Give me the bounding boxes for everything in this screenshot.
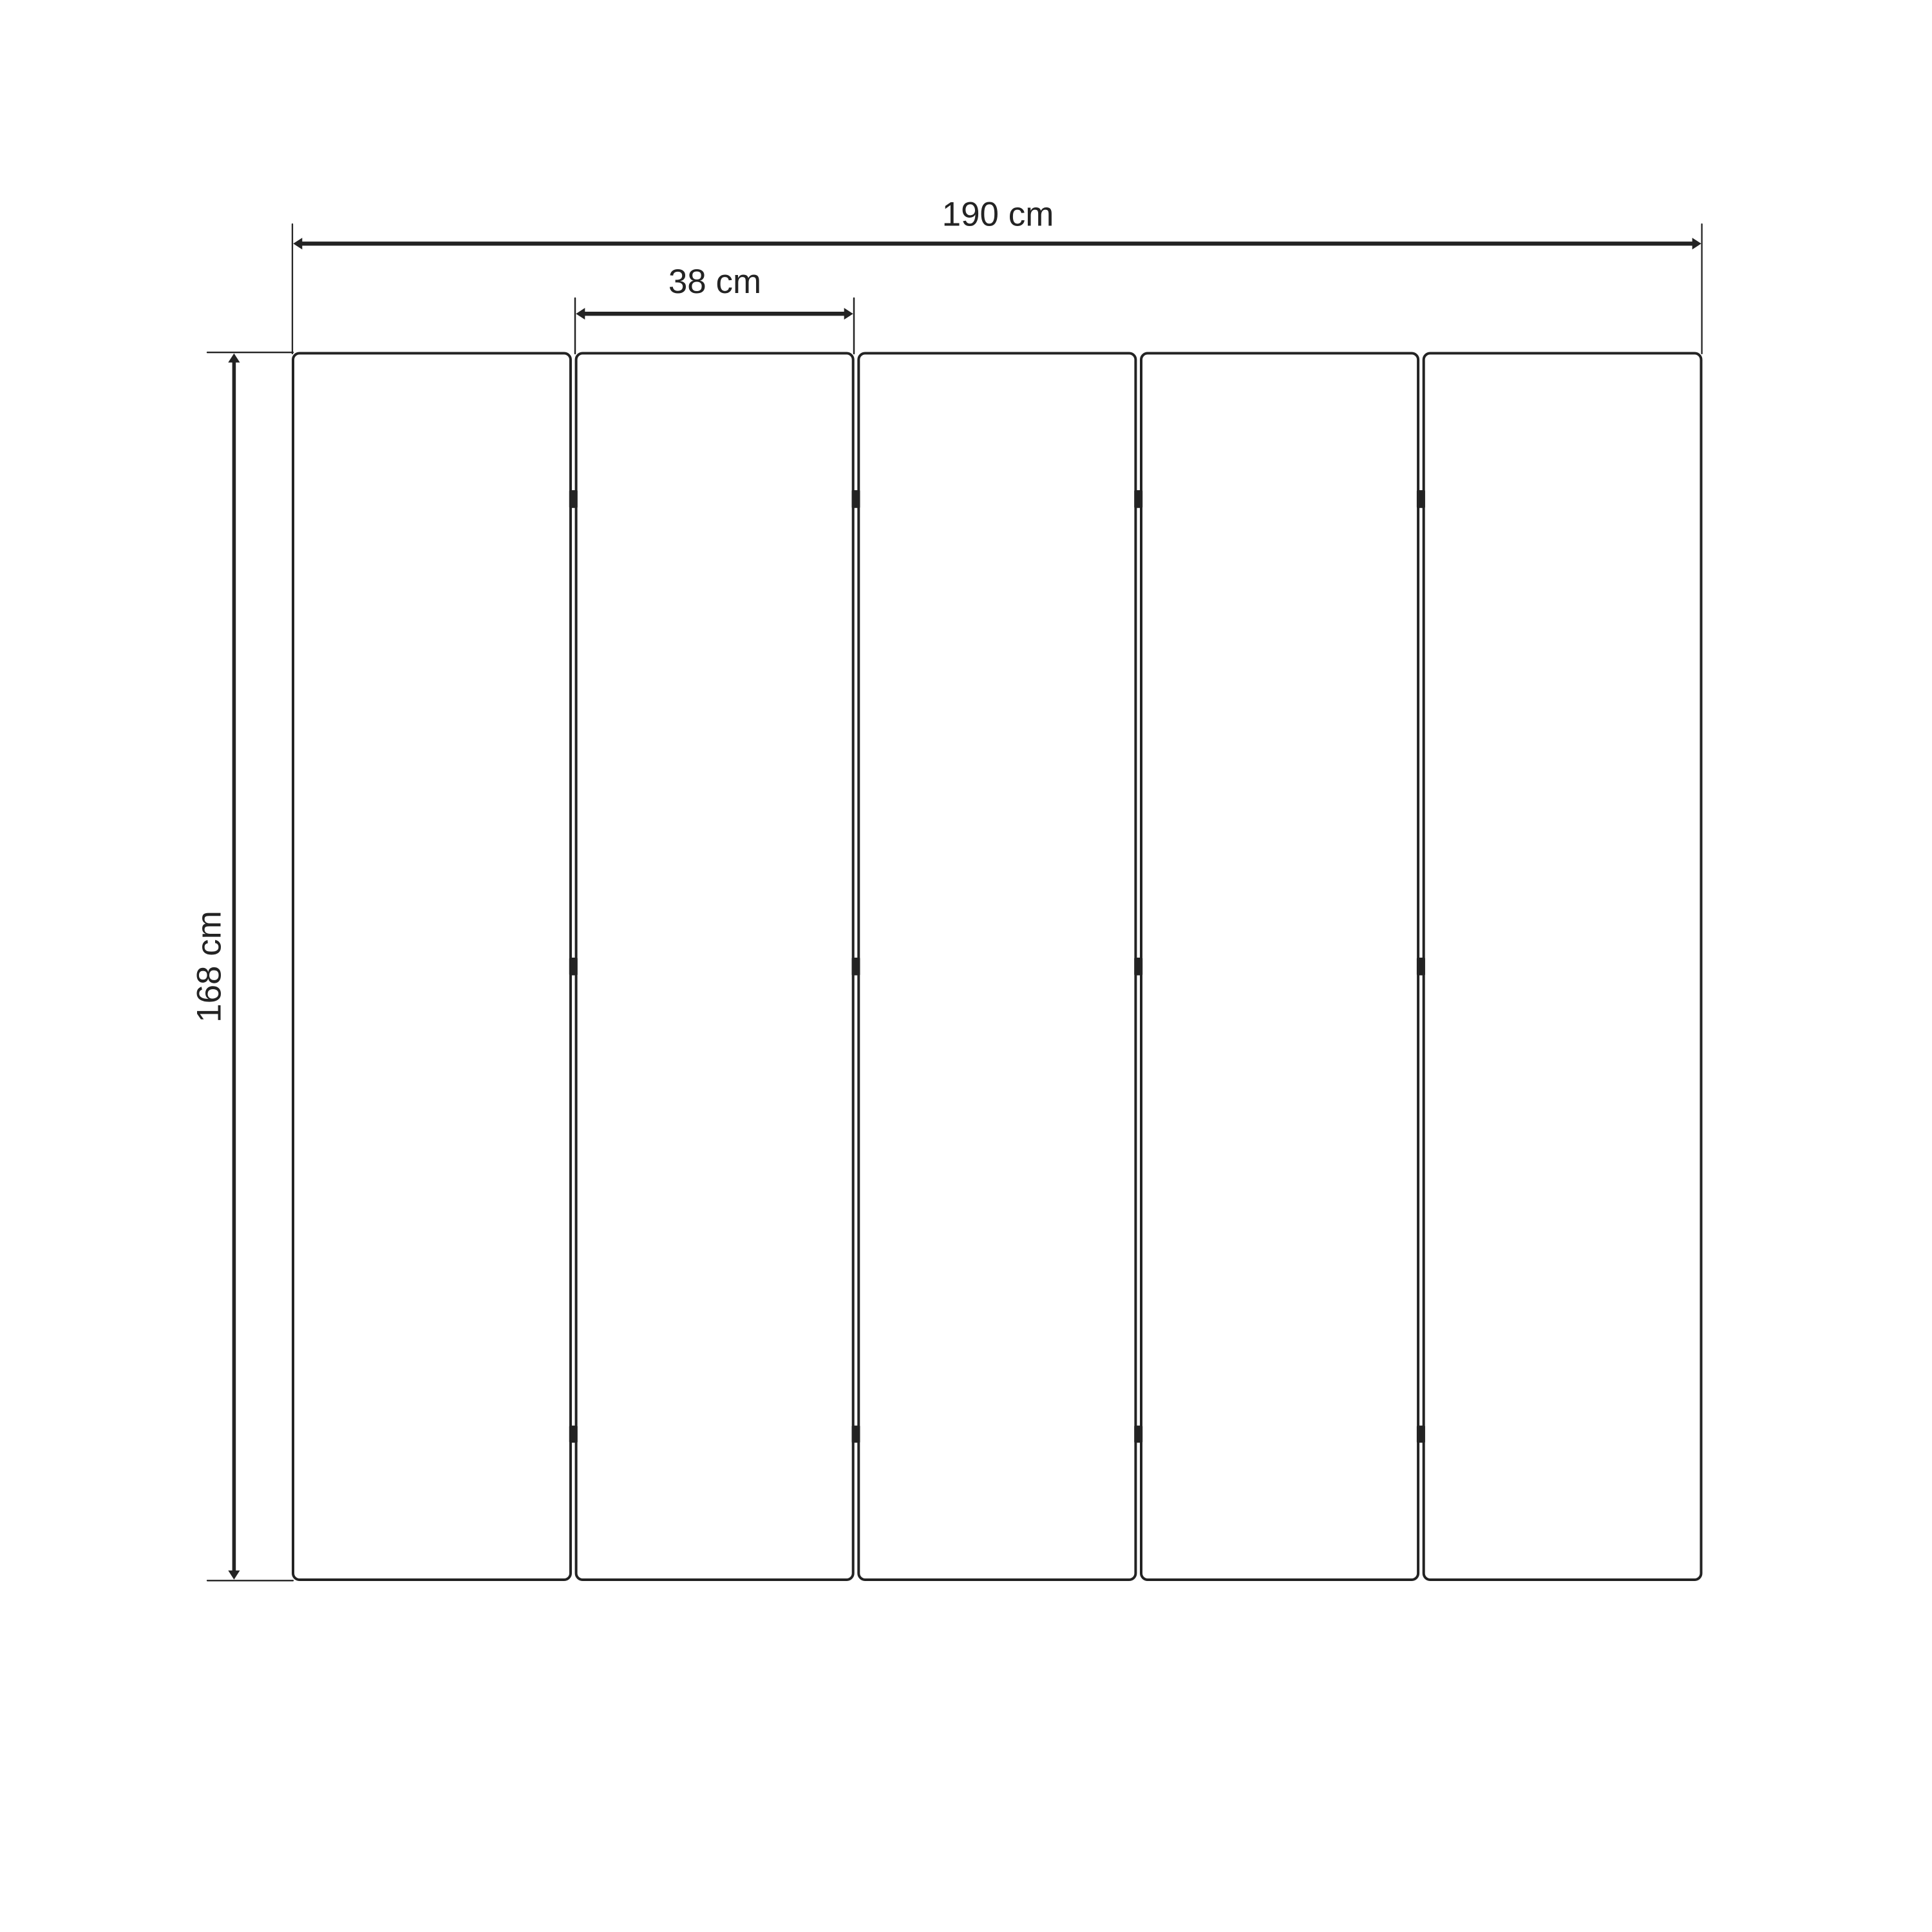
svg-text:168 cm: 168 cm — [191, 911, 229, 1023]
svg-text:38 cm: 38 cm — [668, 263, 761, 301]
svg-text:190 cm: 190 cm — [942, 196, 1054, 234]
